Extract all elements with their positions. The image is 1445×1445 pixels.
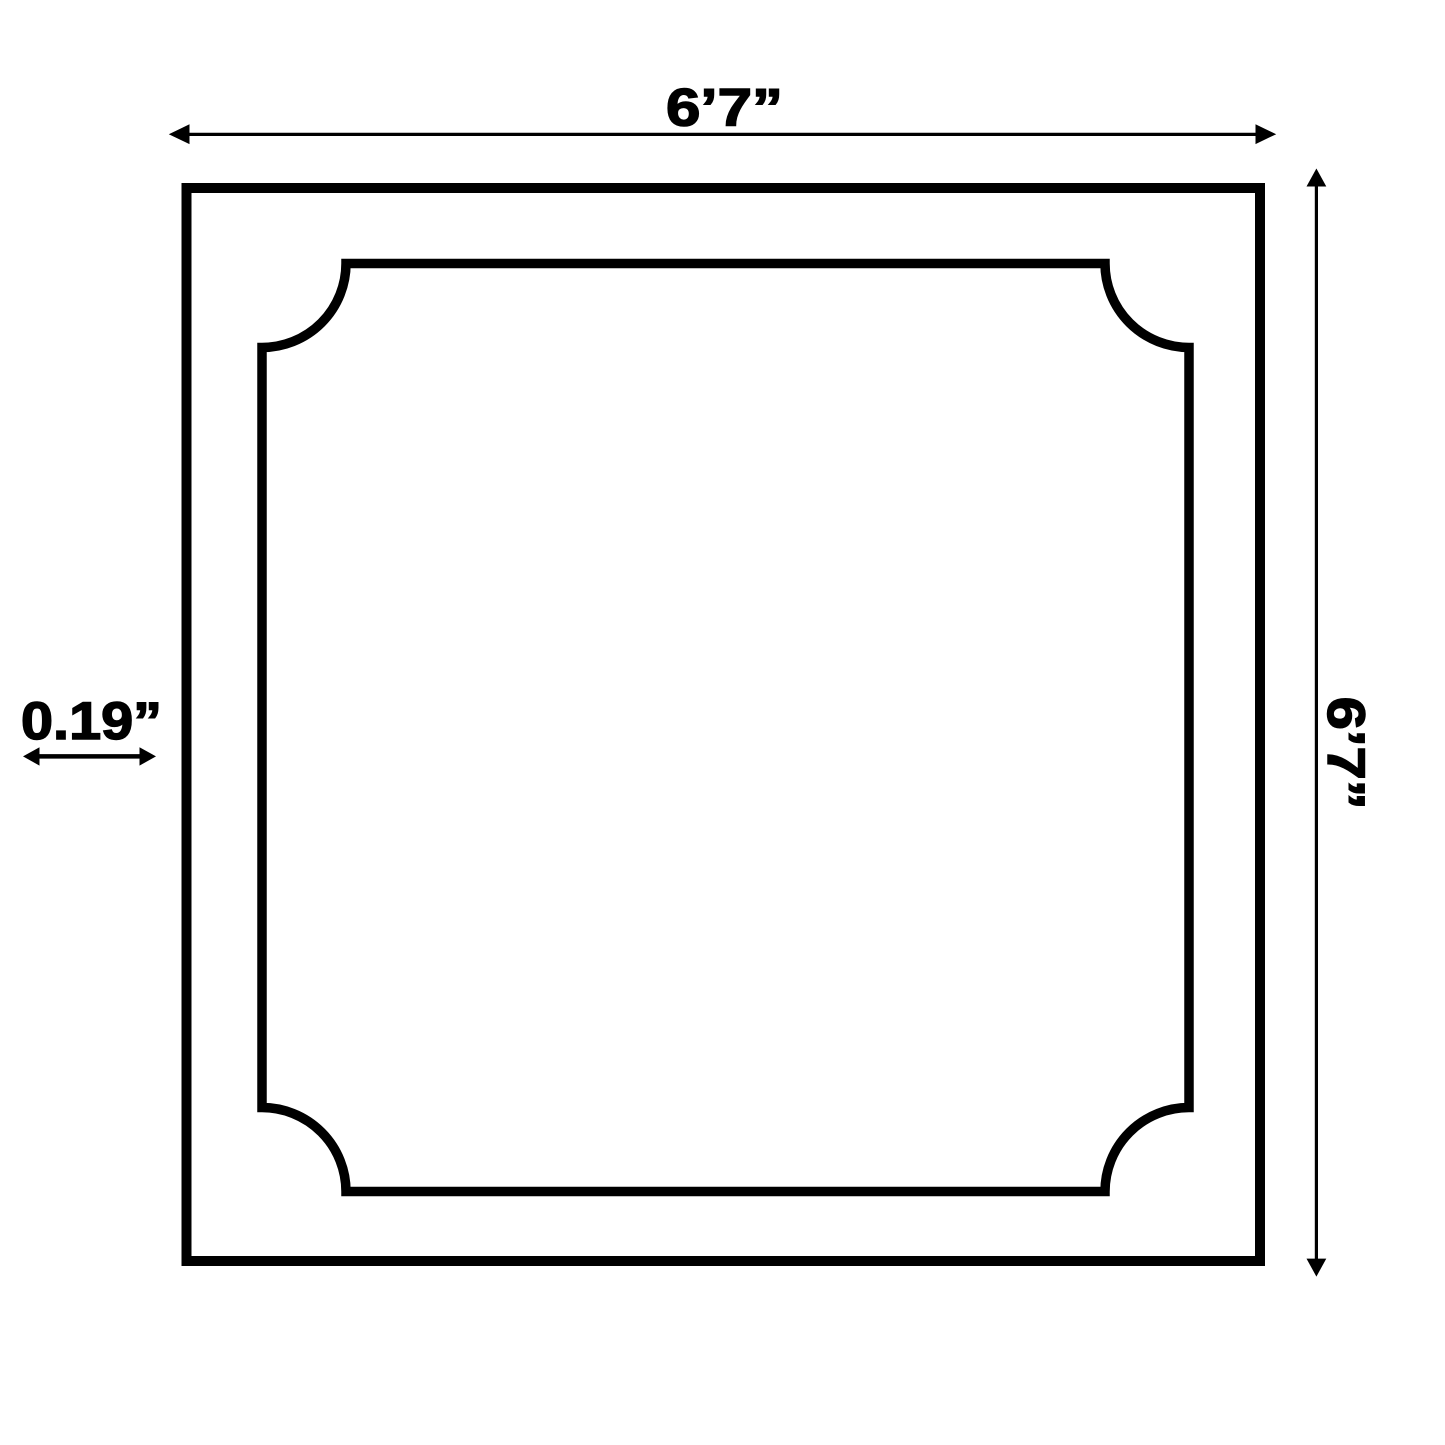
svg-text:0.19”: 0.19” <box>21 692 162 751</box>
svg-text:6’7”: 6’7” <box>666 78 783 137</box>
svg-text:6’7”: 6’7” <box>1316 697 1375 810</box>
